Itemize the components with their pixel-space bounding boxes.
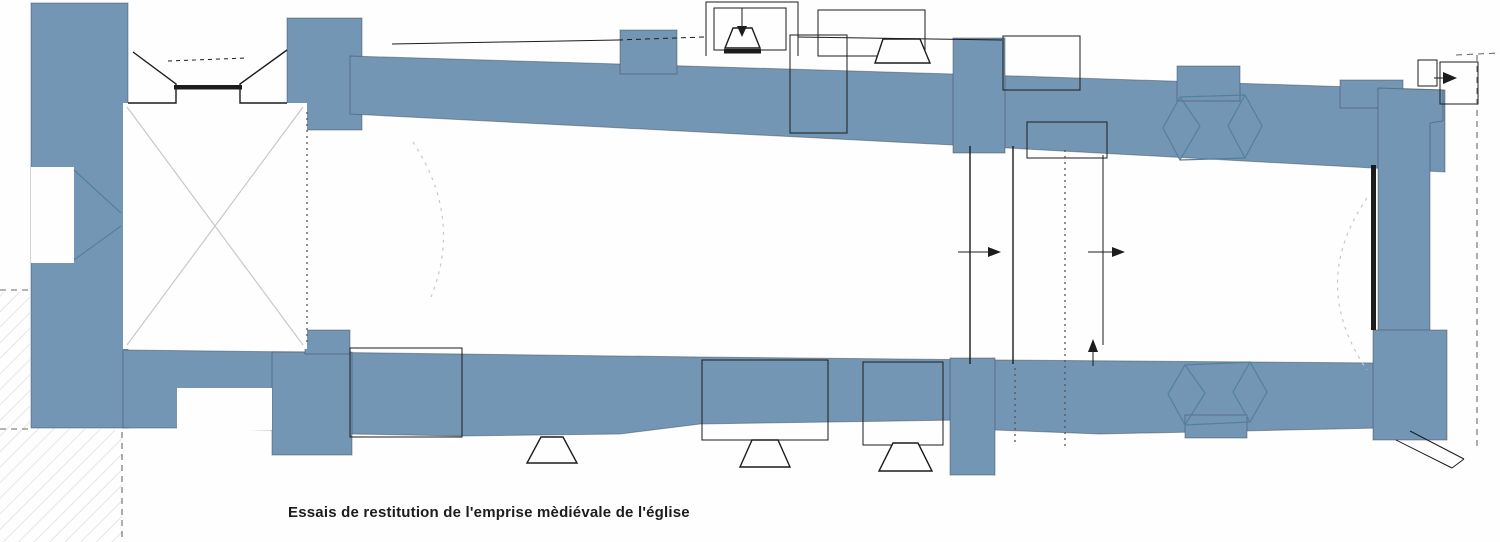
door-lintel — [174, 85, 242, 90]
south-window-recess — [177, 388, 272, 430]
ne-dashed-stub — [1456, 53, 1500, 55]
ne-stair-outline — [1418, 60, 1437, 86]
south-chancel-pier — [950, 358, 995, 475]
se-buttress-line-1 — [1396, 440, 1452, 468]
north-chancel-pier — [953, 38, 1005, 153]
nave-apse-arc — [413, 142, 443, 297]
south-window-splay-1 — [527, 437, 577, 463]
up-arrow-icon — [1088, 339, 1098, 352]
right-arrow-icon — [988, 247, 1001, 257]
north-face-line-west — [392, 40, 618, 44]
southeast-corner-pier — [1373, 330, 1447, 440]
south-tower-pier — [272, 352, 352, 455]
porch-door-sill — [724, 49, 761, 54]
se-buttress-cap — [1452, 459, 1464, 468]
choir-step-arrow-1 — [958, 247, 1001, 257]
door-dashed-line — [168, 58, 247, 61]
north-window-splay — [875, 39, 930, 63]
north-porch — [706, 2, 798, 56]
south-window-splay-2 — [740, 440, 790, 467]
choir-step-arrow-2 — [1088, 247, 1125, 257]
west-tower-door — [128, 50, 287, 103]
church-floor-plan — [0, 0, 1500, 542]
north-buttress-1 — [620, 30, 677, 74]
door-jamb-right — [240, 50, 287, 103]
scanned-church-plan-page: Essais de restitution de l'emprise mèdié… — [0, 0, 1500, 542]
south-tower-respond — [305, 330, 350, 354]
north-wall — [350, 56, 1445, 172]
right-arrow-icon — [1443, 72, 1457, 84]
south-window-splay-3 — [879, 443, 932, 471]
ne-sacristy-outline — [1440, 62, 1478, 104]
south-buttress-bump — [1185, 415, 1247, 438]
east-wall-inner-face — [1371, 165, 1376, 330]
west-window-recess — [31, 167, 74, 263]
door-jamb-left — [128, 52, 176, 103]
choir-apse-arc — [1338, 198, 1368, 370]
figure-caption: Essais de restitution de l'emprise mèdié… — [288, 504, 690, 521]
right-arrow-icon — [1112, 247, 1125, 257]
